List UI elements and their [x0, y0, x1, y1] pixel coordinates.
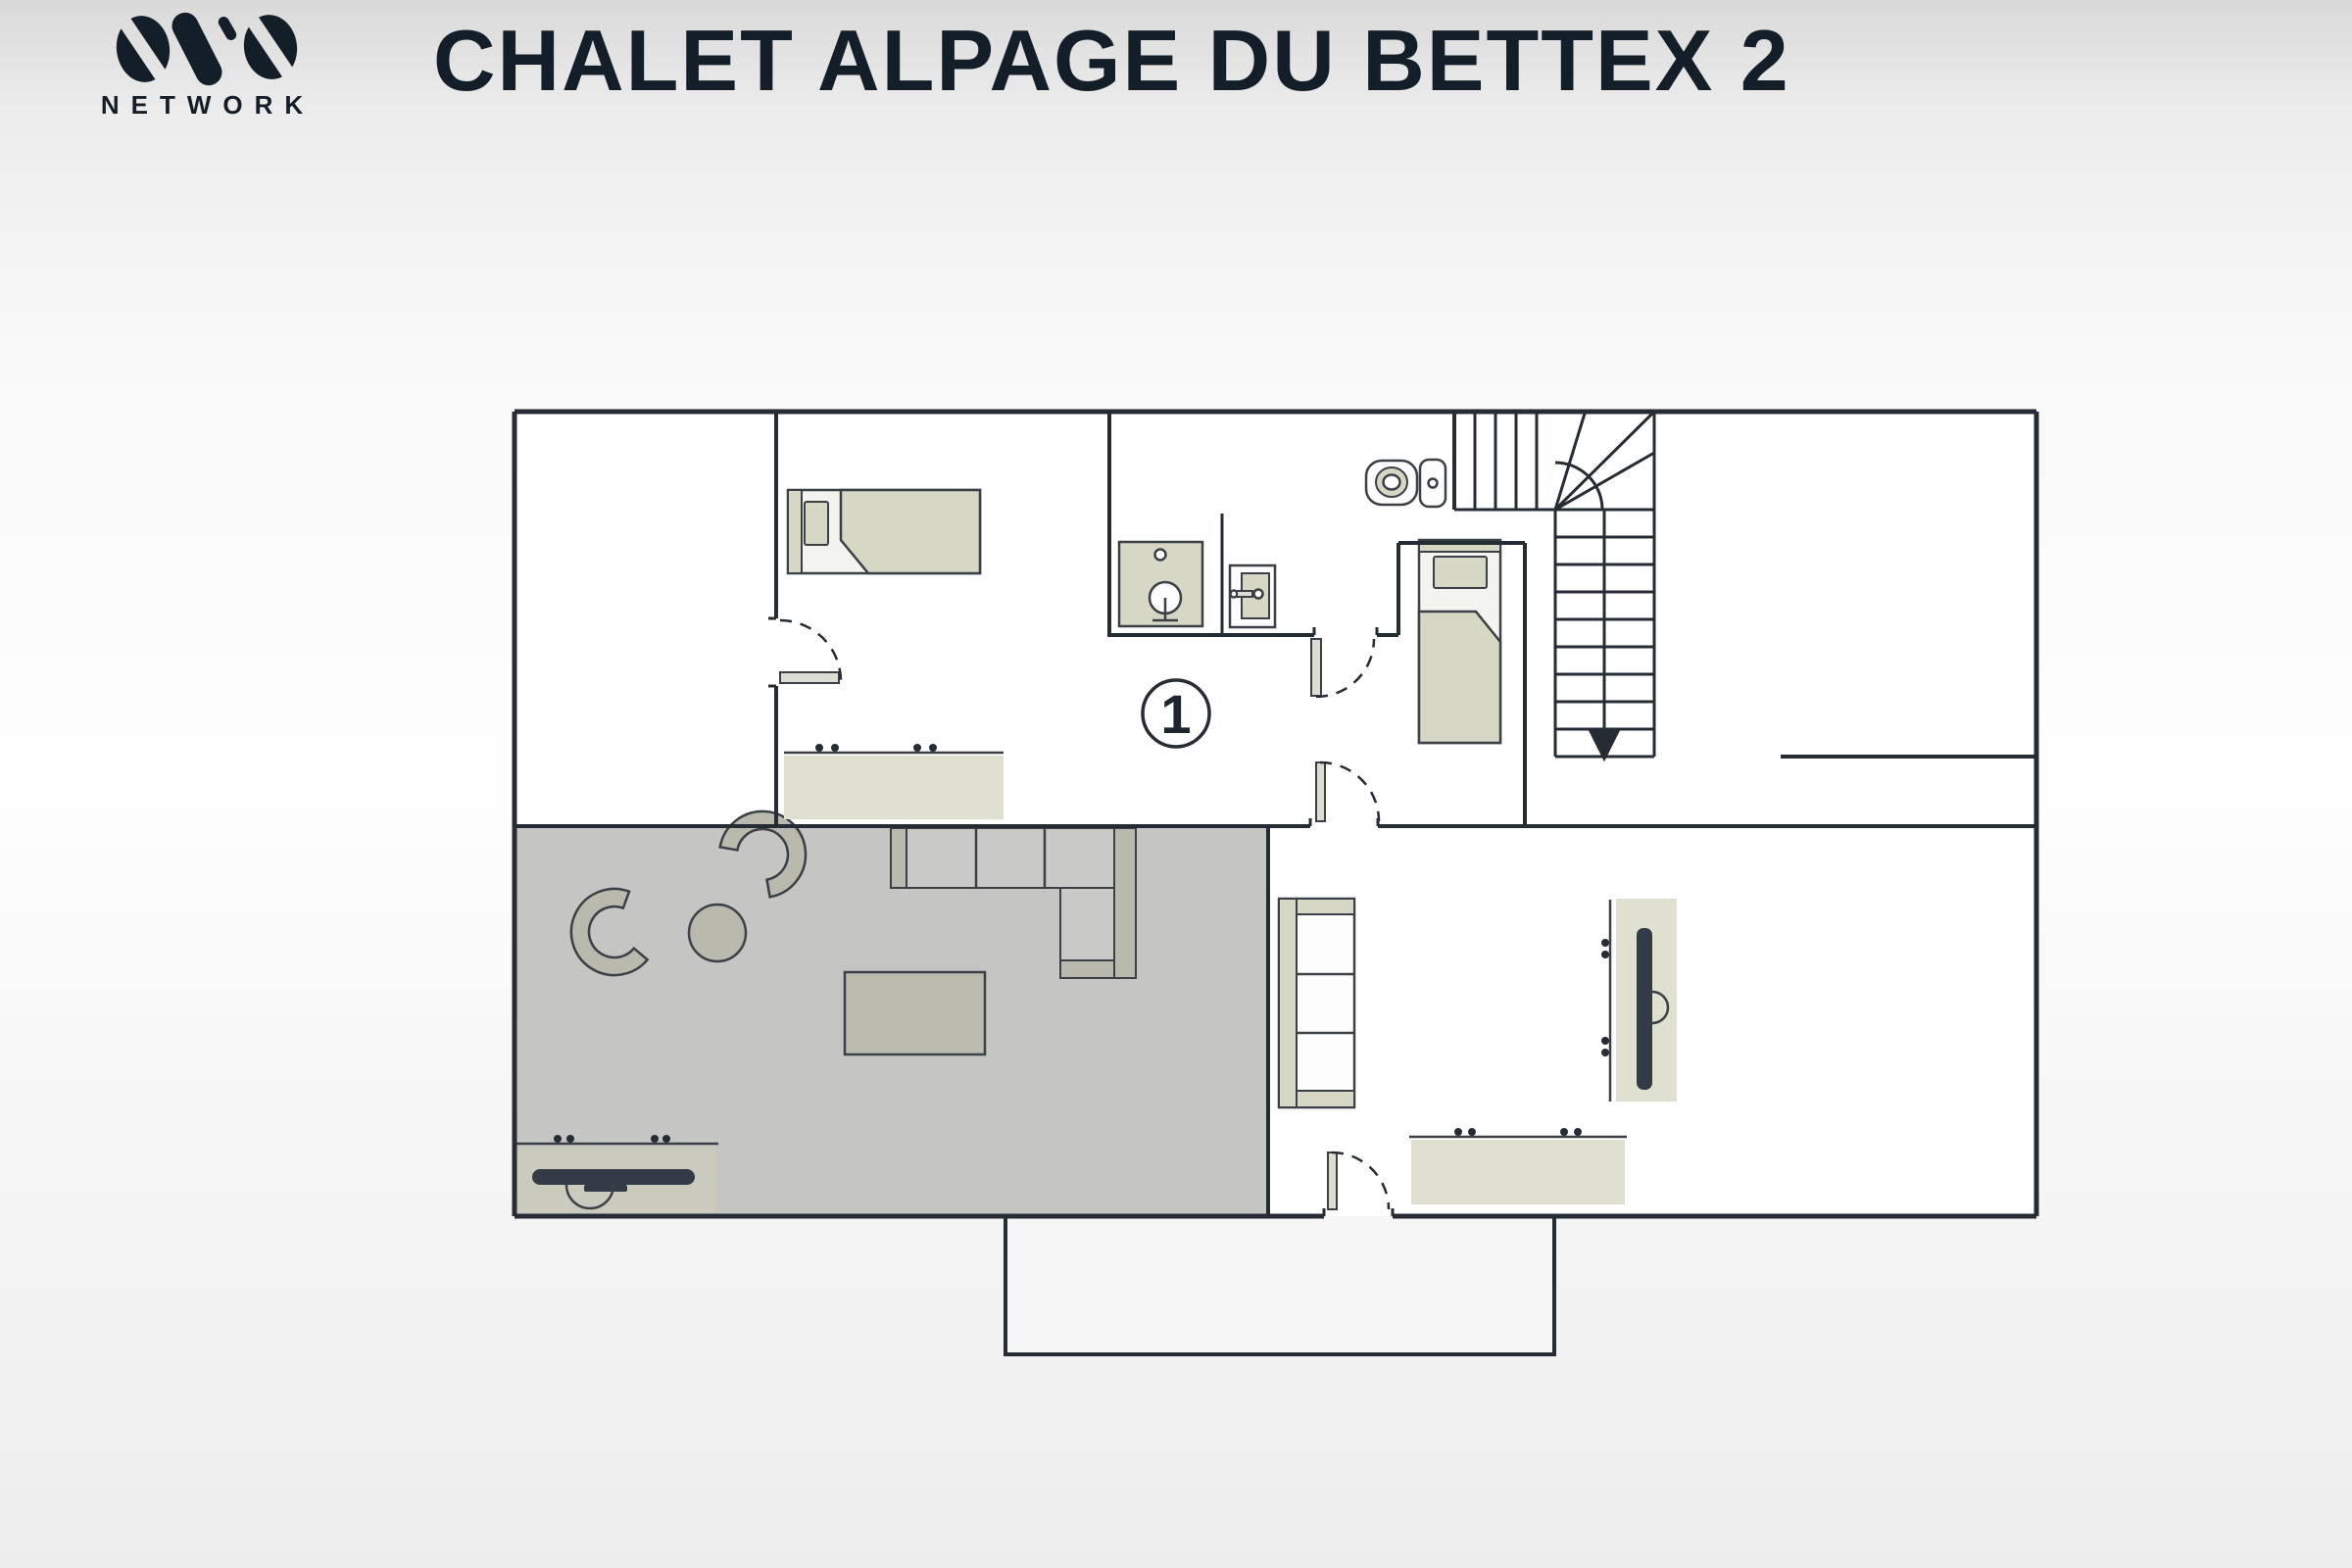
single-bed-vertical	[1419, 540, 1500, 743]
room-number: 1	[1160, 683, 1191, 745]
coffee-table	[845, 972, 985, 1054]
room-number-badge: 1	[1143, 680, 1209, 747]
floor-fills	[514, 412, 2036, 1354]
tv-icon	[1637, 928, 1652, 1090]
toilet	[1366, 460, 1445, 507]
page: NETWORK CHALET ALPAGE DU BETTEX 2	[0, 0, 2352, 1568]
bookshelf	[1279, 899, 1354, 1107]
balcony-annex-floor	[1005, 1216, 1554, 1354]
single-bed-horizontal	[788, 490, 980, 573]
tv-console	[513, 1135, 718, 1213]
floor-plan: 1	[0, 0, 2352, 1568]
washbasin	[1230, 565, 1275, 627]
tv-icon	[532, 1169, 695, 1185]
shower-cabin	[1119, 542, 1202, 626]
round-side-table	[689, 905, 746, 961]
